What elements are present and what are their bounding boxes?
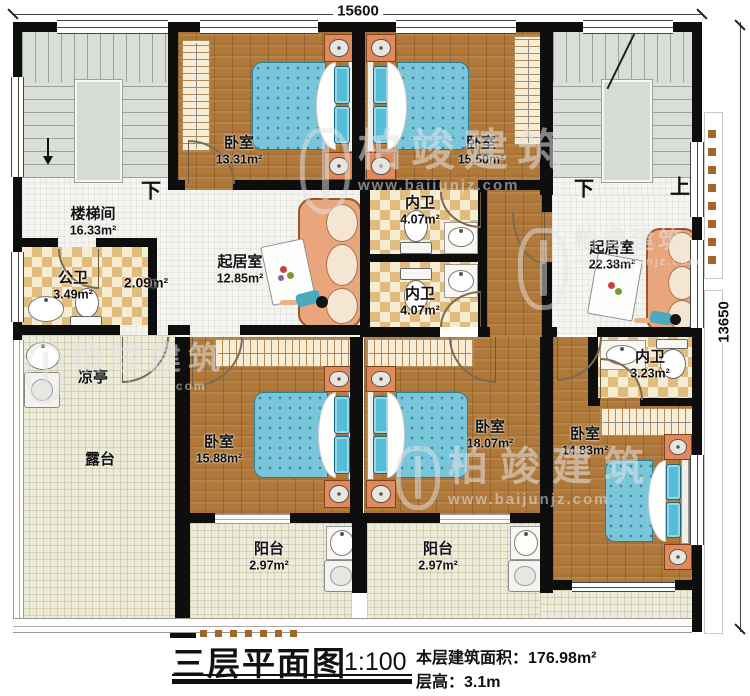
wall xyxy=(13,325,120,335)
room-name: 卧室 xyxy=(458,135,505,153)
washing-machine xyxy=(24,372,60,408)
sofa-cushion xyxy=(326,288,358,324)
wall xyxy=(540,22,553,195)
terrace-railing-left xyxy=(13,340,24,632)
flower-decor xyxy=(615,288,622,295)
room-area: 2.97m² xyxy=(418,559,458,574)
bed-blanket xyxy=(605,460,653,542)
stair-direction-arrow xyxy=(47,138,49,162)
stair-label-up-right: 上 xyxy=(670,171,690,200)
bed-pillow xyxy=(334,396,350,434)
room-label-balcony-left: 阳台 2.97m² xyxy=(249,541,289,574)
wall xyxy=(240,325,360,335)
room-area: 15.50m² xyxy=(458,153,505,168)
room-name: 内卫 xyxy=(630,349,670,367)
stair-label-down-right: 下 xyxy=(574,173,594,202)
sink xyxy=(330,530,354,556)
wall xyxy=(540,337,553,515)
room-area: 16.33m² xyxy=(70,224,117,239)
window xyxy=(572,582,675,592)
room-area: 3.49m² xyxy=(53,288,93,303)
window xyxy=(11,252,24,322)
stair-landing-left xyxy=(75,80,122,182)
floor-height-label: 层高： xyxy=(416,674,464,691)
scale-label: 1:100 xyxy=(344,648,407,677)
wardrobe-bedroom-top-mid xyxy=(514,36,542,146)
floor-area-info: 本层建筑面积：176.98m² xyxy=(416,644,597,668)
nightstand xyxy=(324,34,354,62)
wall xyxy=(168,180,185,190)
wall xyxy=(597,327,692,337)
room-label-bedroom-bottom-right: 卧室 14.83m² xyxy=(562,426,609,459)
floor-height-value: 3.1m xyxy=(464,674,500,691)
washing-machine xyxy=(508,560,542,592)
toilet-tank xyxy=(400,242,432,254)
wall xyxy=(542,195,552,212)
wall xyxy=(588,398,600,406)
sink xyxy=(448,270,474,292)
wall xyxy=(96,238,148,247)
room-label-balcony-right: 阳台 2.97m² xyxy=(418,541,458,574)
room-area: 4.07m² xyxy=(400,213,440,228)
room-name: 露台 xyxy=(85,451,115,469)
sink xyxy=(514,530,538,556)
room-name: 卧室 xyxy=(467,419,514,437)
wall xyxy=(352,22,365,190)
room-area: 12.85m² xyxy=(217,272,264,287)
wall xyxy=(547,580,572,590)
wall xyxy=(233,180,352,190)
room-label-terrace: 露台 xyxy=(85,451,115,469)
room-label-bedroom-bottom-mid: 卧室 18.07m² xyxy=(467,419,514,452)
room-area: 14.83m² xyxy=(562,444,609,459)
window xyxy=(690,455,704,545)
wall xyxy=(22,238,58,247)
wall-balcony-divider xyxy=(352,513,367,593)
nightstand xyxy=(664,544,692,570)
nightstand xyxy=(664,434,692,460)
deco-squares-row xyxy=(200,630,300,637)
floor-height-info: 层高：3.1m xyxy=(416,668,500,692)
room-label-bath-inner-right: 内卫 3.23m² xyxy=(630,349,670,382)
bed-pillow xyxy=(334,66,350,104)
wall xyxy=(352,180,440,190)
room-name: 卧室 xyxy=(196,434,243,452)
room-label-living-left: 起居室 12.85m² xyxy=(217,254,264,287)
window xyxy=(396,20,516,34)
floor-area-value: 176.98m² xyxy=(528,650,597,667)
floor-area-label: 本层建筑面积： xyxy=(416,650,528,667)
window xyxy=(690,142,704,217)
wall xyxy=(542,262,552,337)
wall xyxy=(675,580,702,590)
nightstand xyxy=(366,480,396,508)
wall-terrace-right xyxy=(175,337,190,628)
wall xyxy=(350,337,363,515)
room-label-living-right: 起居室 22.38m² xyxy=(589,240,636,273)
room-label-public-bath: 公卫 3.49m² xyxy=(53,270,93,303)
window xyxy=(690,240,704,328)
stair-treads-right-r xyxy=(648,82,692,178)
room-area: 15.88m² xyxy=(196,452,243,467)
room-name: 阳台 xyxy=(249,541,289,559)
room-label-staircase: 楼梯间 16.33m² xyxy=(70,206,117,239)
room-label-bedroom-top-left: 卧室 13.31m² xyxy=(216,135,263,168)
room-area: 18.07m² xyxy=(467,437,514,452)
stair-landing-right xyxy=(602,80,652,182)
room-label-bath-inner-top: 内卫 4.07m² xyxy=(400,195,440,228)
person-head xyxy=(316,296,328,308)
flower-decor xyxy=(278,275,284,281)
room-area: 2.09m² xyxy=(124,275,168,292)
dimension-width: 15600 xyxy=(333,3,383,20)
room-area: 4.07m² xyxy=(400,304,440,319)
wall xyxy=(360,190,370,337)
bed-pillow xyxy=(666,502,681,538)
room-name: 卧室 xyxy=(562,426,609,444)
room-area: 13.31m² xyxy=(216,153,263,168)
bed-pillow xyxy=(334,436,350,474)
deco-squares-column xyxy=(708,122,716,264)
room-name: 公卫 xyxy=(53,270,93,288)
terrace-railing-bottom xyxy=(13,618,692,633)
stair-treads-right-l xyxy=(553,82,602,178)
room-name: 阳台 xyxy=(418,541,458,559)
sliding-door xyxy=(440,514,510,524)
room-name: 凉亭 xyxy=(78,369,108,387)
window xyxy=(57,20,168,34)
room-area: 2.97m² xyxy=(249,559,289,574)
wall xyxy=(168,22,178,190)
room-name: 卧室 xyxy=(216,135,263,153)
room-area: 3.23m² xyxy=(630,367,670,382)
wall xyxy=(478,180,545,190)
nightstand xyxy=(366,152,396,180)
wall xyxy=(360,327,440,337)
window xyxy=(11,77,24,177)
room-name: 楼梯间 xyxy=(70,206,117,224)
nightstand xyxy=(324,152,354,180)
sink xyxy=(448,227,474,247)
room-name: 内卫 xyxy=(400,195,440,213)
bed-blanket xyxy=(254,392,328,478)
title-underline-thick xyxy=(172,679,412,684)
stair-label-down-left: 下 xyxy=(141,175,161,204)
window xyxy=(200,20,318,34)
wall xyxy=(478,327,490,337)
nightstand xyxy=(366,366,396,392)
stair-treads-top-left xyxy=(22,32,168,82)
toilet-tank xyxy=(656,339,688,349)
room-label-pavilion: 凉亭 xyxy=(78,369,108,387)
room-label-bath-inner-bottom: 内卫 4.07m² xyxy=(400,286,440,319)
person-legs xyxy=(634,318,650,323)
bed-blanket xyxy=(252,62,326,150)
floor-plan: 楼梯间 16.33m² 公卫 3.49m² 2.09m² 起居室 12.85m²… xyxy=(0,0,750,696)
person-head xyxy=(670,314,681,325)
sink xyxy=(26,342,60,370)
flower-decor xyxy=(280,266,287,273)
wall xyxy=(168,325,190,335)
sofa-cushion xyxy=(326,204,358,242)
bed-pillow xyxy=(334,106,350,144)
dimension-line-right xyxy=(740,22,741,632)
bed-pillow xyxy=(666,464,681,500)
flower-decor xyxy=(608,282,615,289)
bed-headboard xyxy=(681,458,689,544)
flower-decor xyxy=(287,272,294,279)
room-name: 内卫 xyxy=(400,286,440,304)
toilet-tank xyxy=(400,268,432,280)
stair-treads-right xyxy=(118,82,168,178)
bed-blanket xyxy=(396,392,468,478)
sofa-cushion xyxy=(326,244,358,286)
page-title: 三层平面图 xyxy=(172,637,347,685)
wall xyxy=(510,513,553,523)
wardrobe-bedroom-top-left xyxy=(182,40,210,152)
sliding-door xyxy=(215,514,290,524)
room-name: 起居室 xyxy=(217,254,264,272)
nightstand xyxy=(366,34,396,62)
wall xyxy=(370,254,478,262)
room-label-hall: 2.09m² xyxy=(124,275,168,292)
wall xyxy=(640,398,692,406)
room-area: 22.38m² xyxy=(589,258,636,273)
wardrobe-bedroom-bottom-right xyxy=(600,408,694,436)
room-name: 起居室 xyxy=(589,240,636,258)
dimension-depth: 13650 xyxy=(712,301,737,343)
room-label-bedroom-bottom-left: 卧室 15.88m² xyxy=(196,434,243,467)
room-label-bedroom-top-mid: 卧室 15.50m² xyxy=(458,135,505,168)
window xyxy=(583,20,673,34)
